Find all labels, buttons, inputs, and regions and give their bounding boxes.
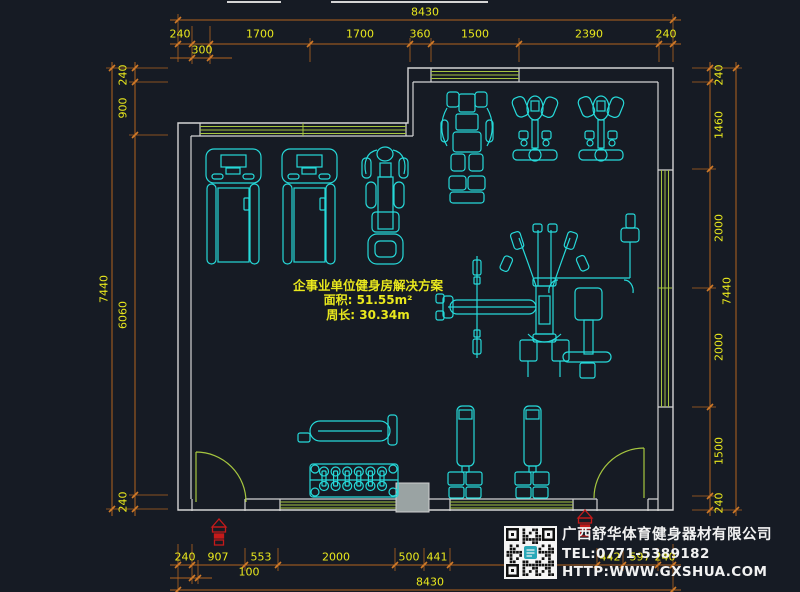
lat-pulldown-icon xyxy=(511,95,560,161)
plan-perimeter: 周长: 30.34m xyxy=(262,308,474,323)
dim-label: 2000 xyxy=(714,214,725,242)
plan-area: 面积: 51.55m² xyxy=(262,293,474,308)
dim-label: 2390 xyxy=(575,29,603,40)
dim-label: 7440 xyxy=(99,275,110,303)
dim-label: 360 xyxy=(410,29,431,40)
column-block xyxy=(396,483,429,512)
dim-label: 2000 xyxy=(322,552,350,563)
recumbent-bike-icon xyxy=(362,147,408,264)
flat-bench-icon xyxy=(298,415,397,445)
dim-label: 1500 xyxy=(461,29,489,40)
dim-label: 240 xyxy=(170,29,191,40)
dumbbell-rack-icon xyxy=(310,464,398,497)
dim-label: 1460 xyxy=(714,111,725,139)
dim-label: 907 xyxy=(208,552,229,563)
dim-label: 441 xyxy=(427,552,448,563)
lat-pulldown-icon xyxy=(577,95,626,161)
weight-tower-icon xyxy=(515,406,549,498)
dim-label: 240 xyxy=(118,65,129,86)
dim-label: 1700 xyxy=(346,29,374,40)
dim-label: 900 xyxy=(118,98,129,119)
treadmill-icon xyxy=(206,149,261,264)
dim-label: 240 xyxy=(714,493,725,514)
fire-hydrant-icon xyxy=(212,519,226,545)
dim-label: 240 xyxy=(656,29,677,40)
walls xyxy=(178,2,673,511)
company-tel: TEL:0771-5389182 xyxy=(562,545,772,563)
plan-annotation: 企事业单位健身房解决方案 面积: 51.55m² 周长: 30.34m xyxy=(262,278,474,323)
dim-label: 500 xyxy=(399,552,420,563)
dim-label: 8430 xyxy=(411,7,439,18)
company-website: HTTP:WWW.GXSHUA.COM xyxy=(562,563,772,581)
dim-label: 1700 xyxy=(246,29,274,40)
dim-label: 6060 xyxy=(118,301,129,329)
dim-label: 300 xyxy=(192,45,213,56)
treadmill-icon xyxy=(282,149,337,264)
dim-label: 7440 xyxy=(722,277,733,305)
weight-tower-icon xyxy=(448,406,482,498)
dim-label: 1500 xyxy=(714,437,725,465)
dim-label: 553 xyxy=(251,552,272,563)
dim-label: 8430 xyxy=(416,577,444,588)
cad-floorplan-canvas: 8430 240 1700 1700 360 1500 2390 240 300… xyxy=(0,0,800,592)
dim-label: 240 xyxy=(118,492,129,513)
dim-label: 240 xyxy=(175,552,196,563)
plan-title: 企事业单位健身房解决方案 xyxy=(262,278,474,293)
company-name: 广西舒华体育健身器材有限公司 xyxy=(562,526,772,545)
dim-label: 240 xyxy=(714,65,725,86)
dim-label: 2000 xyxy=(714,333,725,361)
qr-code-icon xyxy=(504,526,557,579)
strength-machine-icon xyxy=(441,92,493,203)
dim-label: 100 xyxy=(239,567,260,578)
company-info: 广西舒华体育健身器材有限公司 TEL:0771-5389182 HTTP:WWW… xyxy=(562,526,772,581)
